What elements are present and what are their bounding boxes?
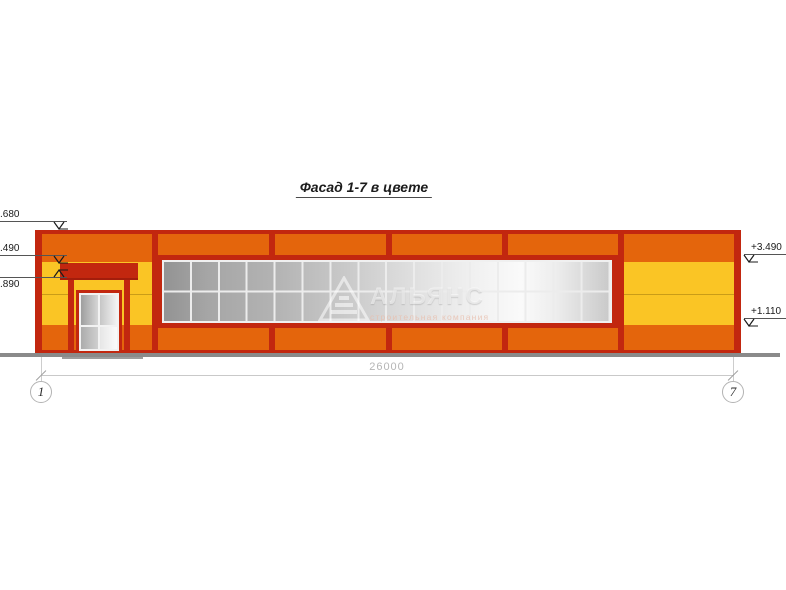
top-band-panel-3	[392, 234, 502, 255]
elevation-mark-label: .490	[0, 243, 19, 254]
top-band-panel-4	[508, 234, 618, 255]
dimension-label: 26000	[369, 361, 405, 373]
axis-label: 1	[38, 384, 45, 400]
elevation-mark-label: .680	[0, 209, 19, 220]
elevation-mark-label: +3.490	[751, 242, 782, 253]
watermark-brand-text: АЛЬЯНС	[370, 283, 485, 311]
elevation-arrow-down-icon	[743, 254, 758, 264]
panel-seam	[624, 294, 734, 295]
door-pane	[100, 327, 117, 349]
facade-drawing-canvas: Фасад 1-7 в цвете АЛЬЯНС строительная ко…	[0, 0, 786, 590]
entrance-post-right	[124, 280, 130, 353]
bottom-band-panel-right	[624, 325, 734, 350]
axis-bubble-1: 1	[30, 381, 52, 403]
elevation-mark-label: +1.110	[751, 306, 781, 317]
top-band-panel-right	[624, 234, 734, 262]
door-pane	[81, 295, 98, 325]
top-band-panel-2	[275, 234, 386, 255]
entrance-canopy	[60, 263, 138, 280]
watermark-tagline-text: строительная компания	[370, 312, 489, 322]
extension-line-axis-1	[41, 357, 42, 381]
bottom-band-panel-2	[275, 328, 386, 350]
dimension-line	[41, 375, 733, 376]
axis-bubble-7: 7	[722, 381, 744, 403]
door-pane	[81, 327, 98, 349]
pyramid-logo-watermark	[318, 276, 370, 322]
axis-label: 7	[730, 384, 737, 400]
bottom-band-panel-3	[392, 328, 502, 350]
ground-line	[0, 353, 780, 357]
elevation-mark-label: .890	[0, 279, 19, 290]
entrance-door	[79, 293, 119, 351]
bottom-band-panel-4	[508, 328, 618, 350]
panel-seam	[130, 294, 152, 295]
elevation-arrow-down-icon	[53, 221, 68, 231]
extension-line-axis-7	[733, 357, 734, 381]
top-band-panel-1	[158, 234, 269, 255]
panel-seam	[42, 294, 68, 295]
drawing-title: Фасад 1-7 в цвете	[296, 179, 432, 198]
elevation-arrow-down-icon	[743, 318, 758, 328]
elevation-arrow-up-icon	[53, 268, 68, 278]
bottom-band-panel-1	[158, 328, 269, 350]
door-pane	[100, 295, 117, 325]
elevation-arrow-down-icon	[53, 255, 68, 265]
entrance-post-left	[68, 280, 74, 353]
